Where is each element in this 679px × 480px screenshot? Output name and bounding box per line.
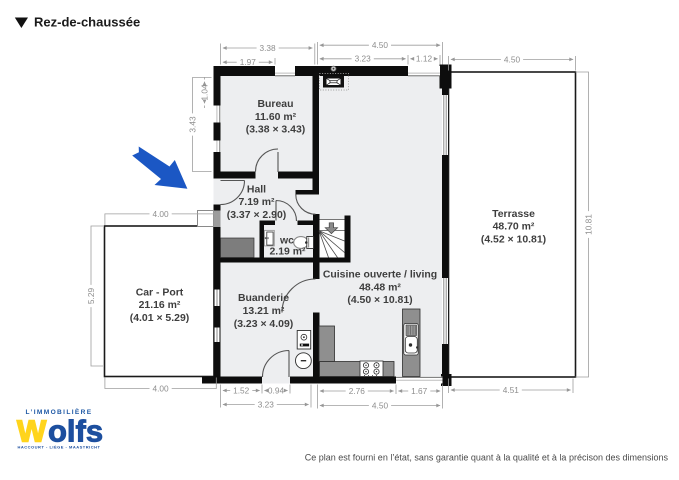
svg-text:21.16 m²: 21.16 m² xyxy=(139,300,181,311)
svg-text:1.97: 1.97 xyxy=(240,57,257,67)
svg-text:1.67: 1.67 xyxy=(411,386,428,396)
svg-text:7.19 m²: 7.19 m² xyxy=(239,197,275,208)
svg-text:2.76: 2.76 xyxy=(349,386,366,396)
svg-text:W: W xyxy=(17,413,47,448)
svg-text:Ce plan est fourni en l’état,: Ce plan est fourni en l’état, sans garan… xyxy=(305,453,669,463)
svg-text:1.12: 1.12 xyxy=(416,54,433,64)
svg-text:Buanderie: Buanderie xyxy=(238,293,289,304)
svg-text:olfs: olfs xyxy=(48,413,103,448)
svg-text:(3.38 × 3.43): (3.38 × 3.43) xyxy=(246,125,305,136)
svg-text:48.70 m²: 48.70 m² xyxy=(493,222,535,233)
svg-text:3.23: 3.23 xyxy=(258,399,275,409)
svg-text:48.48 m²: 48.48 m² xyxy=(359,282,401,293)
svg-text:(4.50 × 10.81): (4.50 × 10.81) xyxy=(347,295,412,306)
svg-text:3.43: 3.43 xyxy=(187,116,197,133)
svg-text:13.21 m²: 13.21 m² xyxy=(243,306,285,317)
svg-text:5.29: 5.29 xyxy=(86,288,96,305)
svg-text:4.50: 4.50 xyxy=(372,40,389,50)
svg-text:1.52: 1.52 xyxy=(233,385,250,395)
svg-text:Terrasse: Terrasse xyxy=(492,209,535,220)
svg-text:2.19 m²: 2.19 m² xyxy=(270,247,306,258)
svg-text:Car - Port: Car - Port xyxy=(136,287,184,298)
svg-text:3.23: 3.23 xyxy=(355,54,372,64)
svg-text:11.60 m²: 11.60 m² xyxy=(255,112,297,123)
svg-text:4.00: 4.00 xyxy=(153,209,170,219)
svg-text:4.50: 4.50 xyxy=(372,400,389,410)
svg-text:Hall: Hall xyxy=(247,184,266,195)
svg-text:wc: wc xyxy=(279,236,294,247)
svg-text:10.81: 10.81 xyxy=(583,214,593,235)
svg-text:(3.37 × 2.90): (3.37 × 2.90) xyxy=(227,210,286,221)
svg-text:0.94: 0.94 xyxy=(268,385,285,395)
svg-text:Rez-de-chaussée: Rez-de-chaussée xyxy=(34,15,140,30)
svg-text:4.51: 4.51 xyxy=(503,385,520,395)
svg-text:4.00: 4.00 xyxy=(153,383,170,393)
svg-text:(4.52 × 10.81): (4.52 × 10.81) xyxy=(481,234,546,245)
svg-text:Cuisine ouverte / living: Cuisine ouverte / living xyxy=(323,270,437,281)
svg-text:3.38: 3.38 xyxy=(260,43,277,53)
svg-text:(4.01 × 5.29): (4.01 × 5.29) xyxy=(130,313,189,324)
svg-text:HACCOURT - LIÈGE - MAASTRICHT: HACCOURT - LIÈGE - MAASTRICHT xyxy=(18,445,101,450)
svg-text:4.50: 4.50 xyxy=(504,54,521,64)
svg-text:1.04: 1.04 xyxy=(199,84,209,101)
svg-text:Bureau: Bureau xyxy=(258,99,294,110)
svg-text:(3.23 × 4.09): (3.23 × 4.09) xyxy=(234,319,293,330)
